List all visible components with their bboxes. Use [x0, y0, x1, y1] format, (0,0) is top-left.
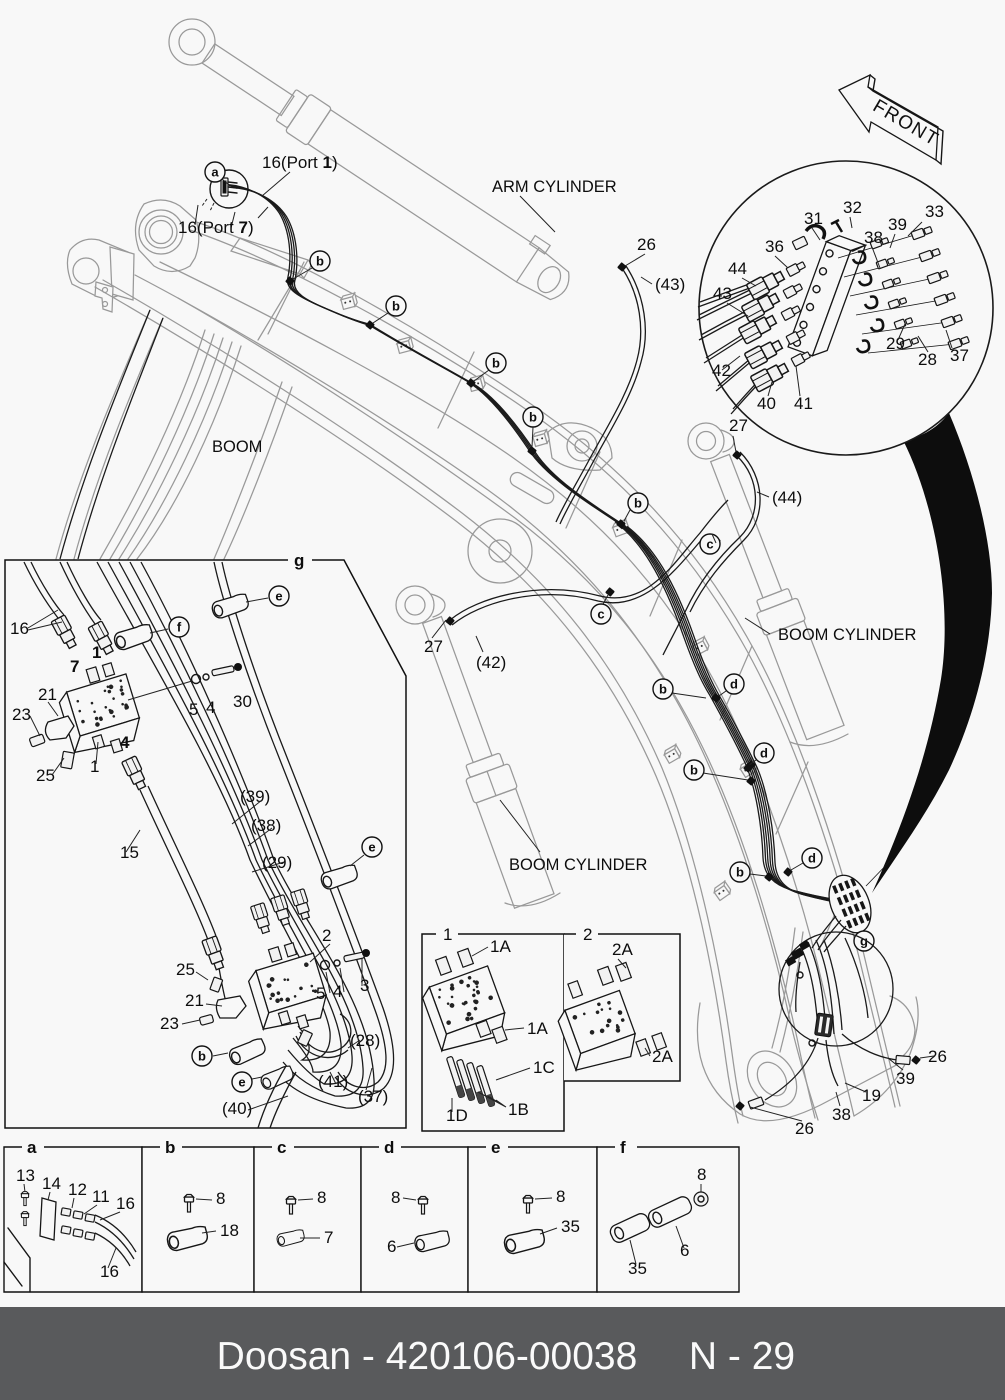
svg-text:21: 21 [38, 685, 57, 704]
svg-text:31: 31 [804, 209, 823, 228]
svg-text:42: 42 [712, 361, 731, 380]
svg-text:16: 16 [10, 619, 29, 638]
svg-text:2: 2 [322, 926, 331, 945]
svg-text:1A: 1A [490, 937, 511, 956]
svg-text:4: 4 [333, 982, 342, 1001]
svg-text:d: d [730, 677, 738, 692]
svg-text:26: 26 [795, 1119, 814, 1138]
svg-text:26: 26 [637, 235, 656, 254]
svg-text:d: d [384, 1138, 394, 1157]
svg-text:(44): (44) [772, 488, 802, 507]
svg-text:8: 8 [697, 1165, 706, 1184]
svg-text:(42): (42) [476, 653, 506, 672]
svg-text:11: 11 [92, 1187, 110, 1206]
svg-text:30: 30 [233, 692, 252, 711]
svg-text:8: 8 [317, 1188, 326, 1207]
svg-text:1: 1 [92, 643, 101, 662]
svg-text:BOOM: BOOM [212, 438, 262, 456]
svg-text:f: f [177, 620, 182, 635]
svg-text:23: 23 [12, 705, 31, 724]
svg-text:e: e [368, 840, 375, 855]
svg-text:b: b [736, 865, 744, 880]
svg-text:13: 13 [16, 1166, 35, 1185]
svg-text:c: c [597, 607, 604, 622]
svg-text:28: 28 [918, 350, 937, 369]
svg-text:27: 27 [424, 637, 443, 656]
svg-text:44: 44 [728, 259, 747, 278]
svg-text:b: b [529, 410, 537, 425]
svg-text:4: 4 [120, 733, 130, 752]
svg-text:(29): (29) [262, 853, 292, 872]
svg-text:b: b [492, 356, 500, 371]
svg-text:2: 2 [583, 925, 592, 944]
svg-text:21: 21 [185, 991, 204, 1010]
svg-text:6: 6 [680, 1241, 689, 1260]
svg-text:1: 1 [90, 757, 99, 776]
svg-text:d: d [760, 746, 768, 761]
svg-text:7: 7 [324, 1228, 333, 1247]
svg-text:b: b [316, 254, 324, 269]
svg-text:(43): (43) [655, 275, 685, 294]
svg-text:7: 7 [70, 657, 79, 676]
svg-text:8: 8 [556, 1187, 565, 1206]
svg-text:8: 8 [216, 1189, 225, 1208]
svg-text:38: 38 [832, 1105, 851, 1124]
svg-text:5: 5 [316, 984, 325, 1003]
svg-text:33: 33 [925, 202, 944, 221]
svg-text:N - 29: N - 29 [689, 1335, 795, 1378]
svg-text:ARM CYLINDER: ARM CYLINDER [492, 178, 617, 196]
svg-text:g: g [294, 551, 304, 570]
svg-text:29: 29 [886, 334, 905, 353]
svg-text:b: b [165, 1138, 175, 1157]
svg-text:(40): (40) [222, 1099, 252, 1118]
svg-text:25: 25 [176, 960, 195, 979]
svg-text:e: e [275, 589, 282, 604]
svg-text:(37): (37) [358, 1087, 388, 1106]
svg-text:Doosan - 420106-00038: Doosan - 420106-00038 [217, 1335, 638, 1378]
svg-text:c: c [277, 1138, 286, 1157]
svg-text:1A: 1A [527, 1019, 548, 1038]
svg-text:39: 39 [896, 1069, 915, 1088]
svg-text:14: 14 [42, 1174, 61, 1193]
svg-text:16: 16 [116, 1194, 135, 1213]
svg-text:a: a [27, 1138, 37, 1157]
svg-text:27: 27 [729, 416, 748, 435]
svg-text:35: 35 [561, 1217, 580, 1236]
svg-text:16(Port 1): 16(Port 1) [262, 153, 338, 172]
svg-text:b: b [198, 1049, 206, 1064]
svg-text:4: 4 [206, 698, 215, 717]
svg-text:b: b [634, 496, 642, 511]
svg-text:3: 3 [360, 976, 369, 995]
svg-text:16(Port 7): 16(Port 7) [178, 218, 254, 237]
svg-text:39: 39 [888, 215, 907, 234]
svg-text:(41): (41) [318, 1072, 348, 1091]
svg-text:(39): (39) [240, 787, 270, 806]
svg-text:2A: 2A [612, 940, 633, 959]
svg-text:1C: 1C [533, 1058, 555, 1077]
svg-text:19: 19 [862, 1086, 881, 1105]
svg-text:36: 36 [765, 237, 784, 256]
svg-text:6: 6 [387, 1237, 396, 1256]
svg-text:35: 35 [628, 1259, 647, 1278]
svg-text:43: 43 [713, 284, 732, 303]
svg-text:b: b [392, 299, 400, 314]
svg-text:38: 38 [864, 228, 883, 247]
svg-text:18: 18 [220, 1221, 239, 1240]
svg-text:(28): (28) [350, 1031, 380, 1050]
svg-text:23: 23 [160, 1014, 179, 1033]
svg-text:c: c [706, 537, 713, 552]
svg-text:BOOM CYLINDER: BOOM CYLINDER [778, 626, 917, 644]
svg-text:5: 5 [189, 700, 198, 719]
svg-text:41: 41 [794, 394, 813, 413]
svg-text:BOOM CYLINDER: BOOM CYLINDER [509, 856, 648, 874]
svg-text:1D: 1D [446, 1106, 468, 1125]
svg-text:f: f [620, 1138, 626, 1157]
svg-text:b: b [690, 763, 698, 778]
svg-text:e: e [238, 1075, 245, 1090]
svg-text:d: d [808, 851, 816, 866]
svg-text:a: a [211, 165, 219, 180]
svg-text:8: 8 [391, 1188, 400, 1207]
svg-text:40: 40 [757, 394, 776, 413]
svg-text:37: 37 [950, 346, 969, 365]
svg-text:32: 32 [843, 198, 862, 217]
svg-text:12: 12 [68, 1180, 87, 1199]
svg-text:b: b [659, 682, 667, 697]
svg-text:1: 1 [443, 925, 452, 944]
svg-text:25: 25 [36, 766, 55, 785]
svg-text:2A: 2A [652, 1047, 673, 1066]
svg-text:1B: 1B [508, 1100, 529, 1119]
svg-text:e: e [491, 1138, 500, 1157]
